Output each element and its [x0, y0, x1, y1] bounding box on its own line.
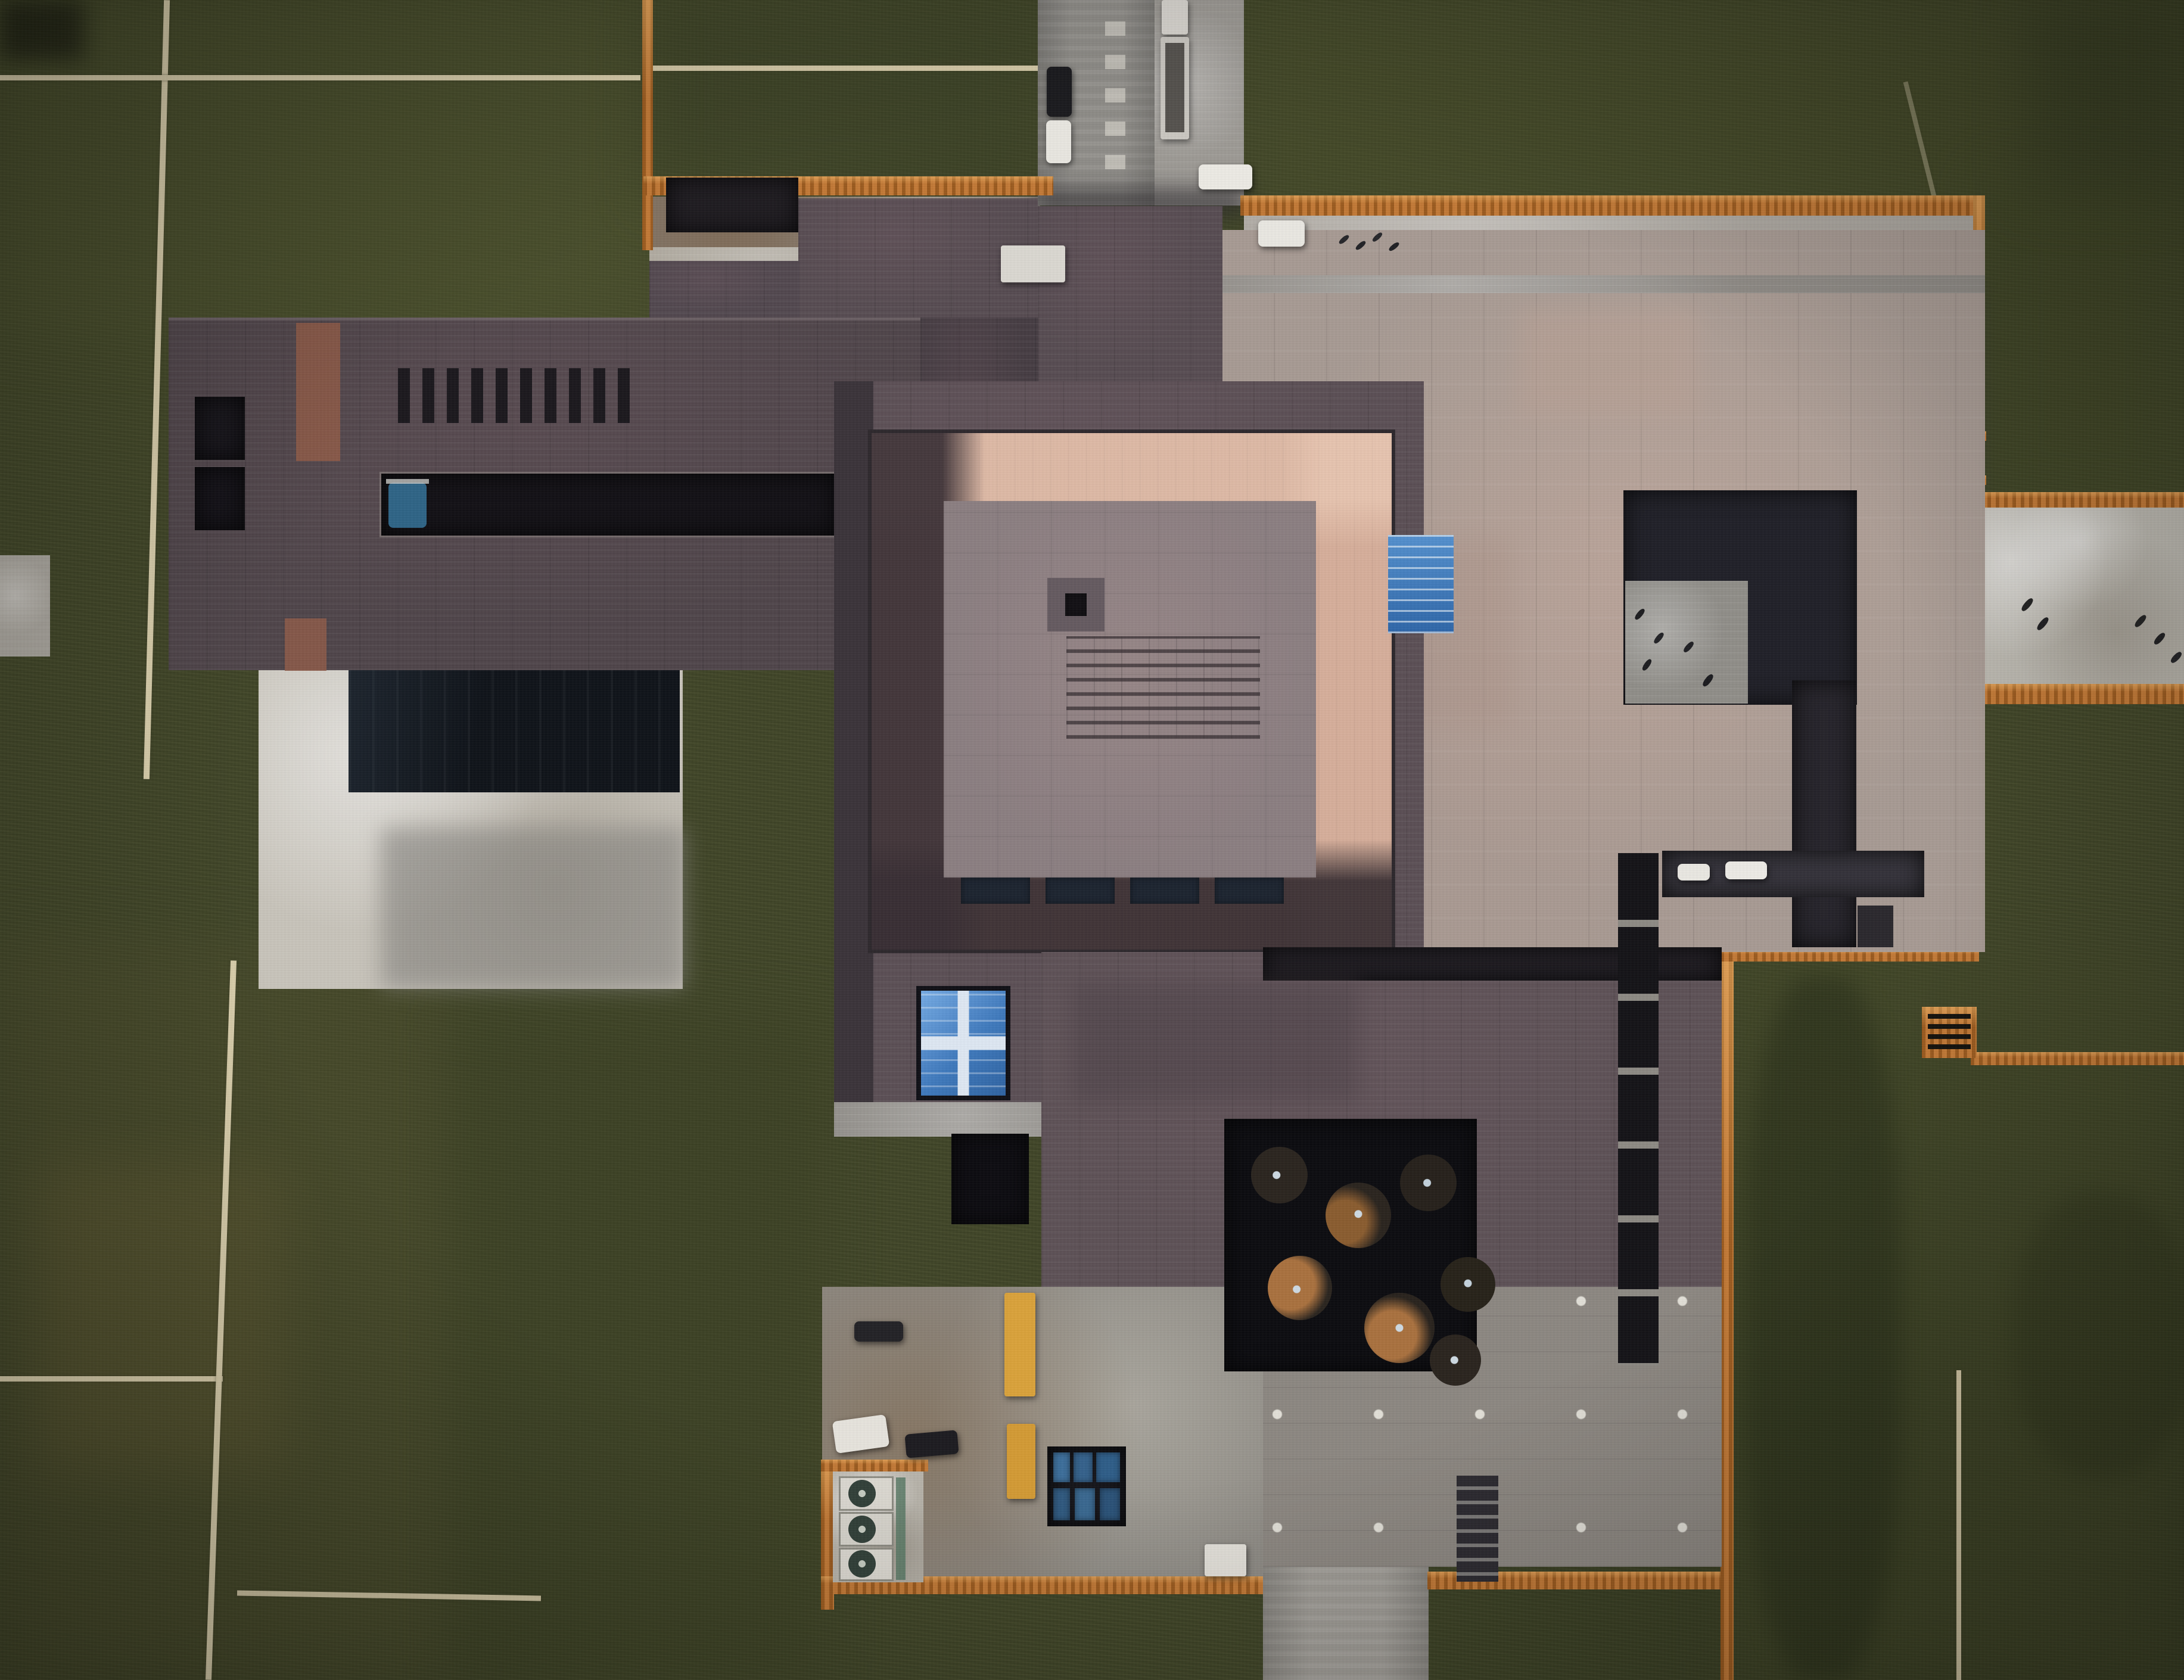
west-wing-slot-vent-6 [520, 368, 532, 423]
north-wing-roof-west [649, 261, 799, 320]
west-wing-slot-vent-3 [447, 368, 459, 423]
corten-edge-north-east [1240, 195, 1983, 216]
corten-edge-southeast-vertical [1721, 952, 1734, 1680]
west-wing-slot-vent-2 [422, 368, 434, 423]
east-hall-courtyard-floor [1625, 581, 1748, 704]
west-wing-brown-patch-south [285, 618, 326, 671]
recess-pane-5 [1075, 1488, 1095, 1520]
yellow-truck-rear [1007, 1424, 1035, 1499]
path-line-horizontal-topmid [653, 66, 1040, 71]
central-hall-west-gap [834, 381, 873, 1102]
corten-walkway-east-top [1954, 492, 2184, 508]
grass-dark-top-right-corner [2026, 0, 2184, 197]
dock-west [0, 555, 50, 657]
pavilion-solar-panel [1388, 535, 1454, 633]
corten-walkway-east-bottom [1954, 684, 2184, 704]
footbridge-slats [1928, 1014, 1971, 1052]
grass-field-bottom-center [453, 1013, 822, 1680]
truck-cab-north [1162, 0, 1188, 35]
plaza-west-shadow [381, 828, 685, 989]
box-truck-south [1205, 1544, 1246, 1576]
pavilion-skylight-strip-4 [1215, 878, 1284, 904]
path-line-vertical-bottomright [1956, 1370, 1961, 1680]
west-wing-slot-vent-5 [496, 368, 508, 423]
west-wing-slot-vent-4 [471, 368, 483, 423]
west-wing-slot-vent-1 [398, 368, 410, 423]
path-line-horizontal-topleft [0, 75, 640, 80]
box-truck-west [1001, 245, 1065, 282]
reflecting-pool [349, 660, 680, 792]
parked-car-white-small [1678, 864, 1710, 881]
roof-chimney [1457, 1476, 1498, 1582]
grass-tan-patch [36, 1162, 286, 1471]
tree-4 [1268, 1256, 1332, 1320]
doorway-opening-lower [951, 1134, 1029, 1224]
grass-field-top-mid [649, 0, 1043, 197]
east-hall-door [1858, 906, 1893, 947]
walkway-east [1954, 508, 2184, 686]
pavilion-skylight-strip-1 [961, 878, 1030, 904]
corten-yard-top [821, 1460, 928, 1471]
car-black-north-road [1047, 67, 1072, 117]
west-wing-square-opening-2 [195, 467, 245, 530]
east-hall-notch [1792, 680, 1856, 947]
east-hall-rim [1221, 275, 1985, 293]
parked-car-white-large [1725, 861, 1767, 879]
west-wing-square-opening-1 [195, 397, 245, 460]
fan-blade-2 [848, 1516, 876, 1543]
recess-pane-2 [1074, 1452, 1093, 1482]
tree-shadow-bottom-right-1 [1746, 977, 1900, 1680]
pavilion-skylight-strip-3 [1130, 878, 1199, 904]
skylight-blue-lower [916, 986, 1010, 1100]
aerial-photo-stage [0, 0, 2184, 1680]
west-wing-slot-vent-9 [593, 368, 605, 423]
grass-field-right [1984, 179, 2184, 512]
center-north-roof [1038, 206, 1222, 385]
pavilion-roof-hatch-inner [1065, 593, 1087, 616]
east-hall-pink-tint-1 [1519, 310, 1698, 417]
yellow-truck-front [1004, 1293, 1035, 1396]
tree-7 [1430, 1334, 1481, 1386]
equipment-pipes [896, 1477, 906, 1580]
recess-pane-3 [1096, 1452, 1120, 1482]
fan-blade-3 [848, 1550, 876, 1578]
west-wing-long-opening [381, 474, 836, 536]
road-north-crosswalk [1105, 21, 1125, 186]
car-dark-service-yard [854, 1321, 903, 1342]
tree-5 [1364, 1293, 1435, 1363]
car-black-service-yard [904, 1430, 959, 1458]
corten-edge-north-vertical [642, 0, 653, 250]
path-line-horizontal-bottomleft [0, 1376, 223, 1382]
tree-3 [1400, 1155, 1457, 1211]
west-wing-slot-vent-8 [569, 368, 581, 423]
photo-corner-shadow [0, 0, 83, 60]
grass-field-top-left [0, 0, 643, 334]
car-white-plaza-topright [1258, 220, 1305, 247]
pavilion-roof-vents [1066, 636, 1260, 739]
tree-shadow-bottom-right-2 [2014, 1191, 2184, 1477]
west-wing-slot-vent-10 [618, 368, 630, 423]
west-wing-brown-patch-north [296, 323, 340, 461]
corten-edge-southeast-lower [1971, 1052, 2184, 1065]
van-white-north-road [1046, 120, 1071, 163]
cell-slot-column [1618, 853, 1659, 1365]
blue-lift-rim [386, 479, 429, 484]
car-white-north-road [1199, 164, 1252, 189]
tree-6 [1441, 1257, 1495, 1312]
west-wing-roof-edge [169, 318, 1038, 321]
pavilion-skylight-strip-2 [1046, 878, 1115, 904]
tree-2 [1326, 1183, 1391, 1248]
west-wing-slot-vent-7 [545, 368, 556, 423]
blue-lift-in-opening [388, 483, 427, 528]
north-wing-notch [666, 178, 798, 232]
fan-blade-1 [848, 1480, 876, 1507]
recess-pane-6 [1100, 1488, 1120, 1520]
truck-trailer-cargo [1165, 43, 1184, 132]
south-wing-stain [1072, 983, 1358, 1102]
tree-1 [1251, 1147, 1308, 1203]
recess-pane-1 [1053, 1452, 1070, 1482]
recess-pane-4 [1053, 1488, 1070, 1520]
